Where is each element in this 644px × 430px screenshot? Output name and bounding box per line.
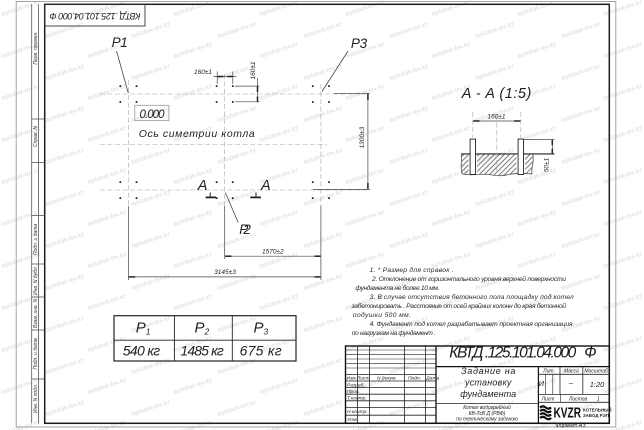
svg-text:Разраб.: Разраб. <box>347 382 365 388</box>
svg-text:Т.контр.: Т.контр. <box>347 396 367 402</box>
svg-text:50±1: 50±1 <box>544 157 551 172</box>
svg-text:1300±3: 1300±3 <box>359 126 366 148</box>
svg-text:Перв. примен.: Перв. примен. <box>33 31 39 64</box>
svg-text:160±1: 160±1 <box>250 61 257 79</box>
svg-text:Дата: Дата <box>425 376 439 382</box>
svg-text:A - A (1:5): A - A (1:5) <box>461 86 532 102</box>
svg-text:3145±3: 3145±3 <box>214 269 236 276</box>
svg-text:подушки 500 мм.: подушки 500 мм. <box>353 311 411 319</box>
svg-text:установку: установку <box>464 378 512 388</box>
svg-text:–: – <box>568 379 574 388</box>
svg-text:КВТД .125.101.04.000 Ф: КВТД .125.101.04.000 Ф <box>50 11 141 21</box>
svg-text:3. В случае отсутствия бетонно: 3. В случае отсутствия бетонного пола пл… <box>370 293 574 301</box>
svg-text:Инв. N дубл.: Инв. N дубл. <box>33 266 39 295</box>
svg-text:Взам. инв. N: Взам. инв. N <box>33 299 39 329</box>
svg-text:Формат А3: Формат А3 <box>555 423 586 429</box>
svg-text:Лист: Лист <box>541 397 555 403</box>
svg-text:A: A <box>260 178 271 194</box>
svg-text:Подп. и дата: Подп. и дата <box>33 224 39 256</box>
svg-text:Лит.: Лит. <box>542 368 555 374</box>
svg-text:Изм.Лист: Изм.Лист <box>347 376 370 382</box>
svg-text:по нагрузкам на фундамент .: по нагрузкам на фундамент . <box>352 329 436 337</box>
svg-text:Задание на: Задание на <box>461 366 515 376</box>
svg-text:Пров.: Пров. <box>347 389 360 395</box>
svg-text:фундамента не более 10 мм.: фундамента не более 10 мм. <box>355 284 439 292</box>
svg-text:P2: P2 <box>239 222 251 237</box>
svg-text:1485 кг: 1485 кг <box>180 342 223 358</box>
svg-text:КОТЕЛЬНЫЙ: КОТЕЛЬНЫЙ <box>583 408 612 413</box>
svg-text:Подп.: Подп. <box>408 376 421 382</box>
svg-text:И: И <box>539 379 545 388</box>
svg-text:КВТД .125.101.04.000: КВТД .125.101.04.000 <box>449 344 576 361</box>
svg-text:1: 1 <box>597 397 600 403</box>
svg-text:Ф: Ф <box>584 344 596 361</box>
svg-text:Листов: Листов <box>568 397 588 403</box>
svg-text:160±1: 160±1 <box>487 113 505 120</box>
svg-text:540 кг: 540 кг <box>123 342 161 358</box>
svg-text:Н.контр.: Н.контр. <box>347 409 368 415</box>
svg-text:Ось симетрии котла: Ось симетрии котла <box>139 128 255 140</box>
svg-text:1570±2: 1570±2 <box>262 249 284 256</box>
svg-text:2. Отклонение от горизонтально: 2. Отклонение от горизонтального уровня … <box>371 275 566 283</box>
svg-text:забетонировать . Расстояние от: забетонировать . Расстояние от осей край… <box>351 302 567 310</box>
svg-text:4. Фундамент под котел разраба: 4. Фундамент под котел разрабатывает про… <box>370 320 573 328</box>
svg-text:P1: P1 <box>112 35 128 50</box>
svg-text:N докум.: N докум. <box>377 376 397 382</box>
svg-text:A: A <box>197 178 208 194</box>
svg-text:0.000: 0.000 <box>140 109 166 121</box>
svg-text:фундамента: фундамента <box>460 389 516 399</box>
svg-text:Котел водогрейный: Котел водогрейный <box>463 404 511 411</box>
svg-text:1. * Размер для справок .: 1. * Размер для справок . <box>370 266 454 274</box>
svg-text:по техническому заданию: по техническому заданию <box>456 417 518 423</box>
svg-text:Справ. N: Справ. N <box>33 126 39 147</box>
svg-text:Масштаб: Масштаб <box>584 368 608 374</box>
svg-text:P3: P3 <box>351 36 368 51</box>
svg-text:675 кг: 675 кг <box>240 342 282 358</box>
svg-text:160±1: 160±1 <box>194 69 212 76</box>
svg-text:Инв. N подл.: Инв. N подл. <box>33 384 39 413</box>
svg-text:ЗАВОД РЭП: ЗАВОД РЭП <box>583 413 609 418</box>
svg-text:Утв.: Утв. <box>347 417 358 423</box>
svg-text:Подп. и дата: Подп. и дата <box>33 338 39 370</box>
svg-text:KVZR: KVZR <box>554 405 582 422</box>
svg-text:Масса: Масса <box>564 368 579 374</box>
svg-text:1:20: 1:20 <box>590 380 605 389</box>
